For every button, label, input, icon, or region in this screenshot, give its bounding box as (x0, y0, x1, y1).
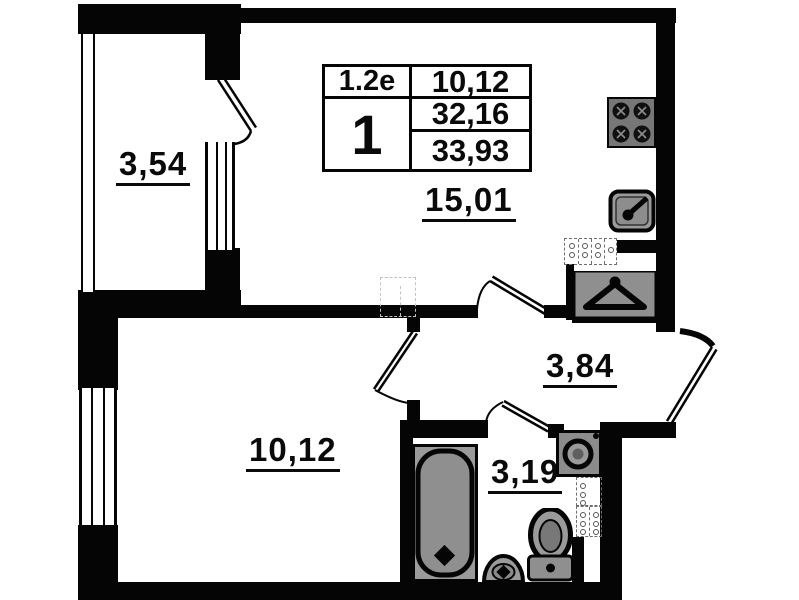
legend-room-count: 1 (325, 99, 412, 169)
hanger-icon (574, 271, 656, 318)
legend-living-area: 10,12 (412, 67, 529, 99)
hallway-area-label: 3,84 (543, 349, 617, 388)
wall-main-top (230, 8, 676, 23)
pedestal-sink-icon (482, 552, 525, 582)
balcony-door (218, 77, 256, 145)
bedroom-window (79, 388, 117, 525)
living-room-appliance-outline (380, 277, 416, 317)
legend-table: 1.2e 10,12 1 32,16 33,93 (322, 64, 532, 172)
entrance-door (667, 331, 717, 424)
wall-entrance-lower (600, 422, 676, 438)
stove (607, 97, 656, 148)
bedroom-area-label: 10,12 (246, 433, 340, 472)
kitchen-sink (608, 189, 656, 233)
floor-plan: 1.2e 10,12 1 32,16 33,93 3,54 15,01 3,84… (0, 0, 799, 600)
bathtub-icon (412, 444, 478, 582)
toilet (527, 508, 574, 582)
bathroom-area-label: 3,19 (488, 455, 562, 494)
bathroom-door (486, 401, 550, 432)
balcony-area-label: 3,54 (116, 147, 190, 186)
wall-kitchen-stub (617, 240, 657, 253)
wall-bottom (78, 582, 622, 600)
washing-machine (556, 430, 602, 477)
living-balcony-window (205, 142, 235, 250)
washing-machine-icon (556, 430, 602, 477)
living-room-door (477, 277, 548, 315)
window-mullion (91, 388, 93, 525)
legend-unit-type: 1.2e (325, 67, 412, 99)
balcony-glazing (81, 34, 95, 292)
bathtub (412, 444, 478, 582)
legend-area-no-balcony: 32,16 (412, 99, 529, 132)
wall-balcony-divider-top-stub (205, 30, 240, 80)
window-mullion (103, 388, 105, 525)
wall-bathroom-top-left (400, 420, 488, 438)
wall-bedroom-left-lower (78, 525, 118, 600)
living-area-label: 15,01 (422, 183, 516, 222)
kitchen-sink-icon (608, 189, 656, 233)
window-mullion (216, 142, 218, 250)
wall-right-upper (656, 8, 675, 332)
wall-hall-bedroom-stub-top (407, 317, 420, 332)
window-mullion (225, 142, 227, 250)
wall-living-bottom (230, 305, 478, 318)
wall-wardrobe-left (566, 264, 574, 320)
legend-total-area: 33,93 (412, 132, 529, 169)
wall-bedroom-left-upper (78, 310, 118, 390)
pedestal-sink (482, 552, 525, 582)
bedroom-door (374, 331, 417, 403)
wardrobe (574, 271, 656, 318)
wall-right-lower (600, 438, 622, 600)
toilet-icon (527, 508, 574, 582)
stove-icon (607, 97, 656, 148)
